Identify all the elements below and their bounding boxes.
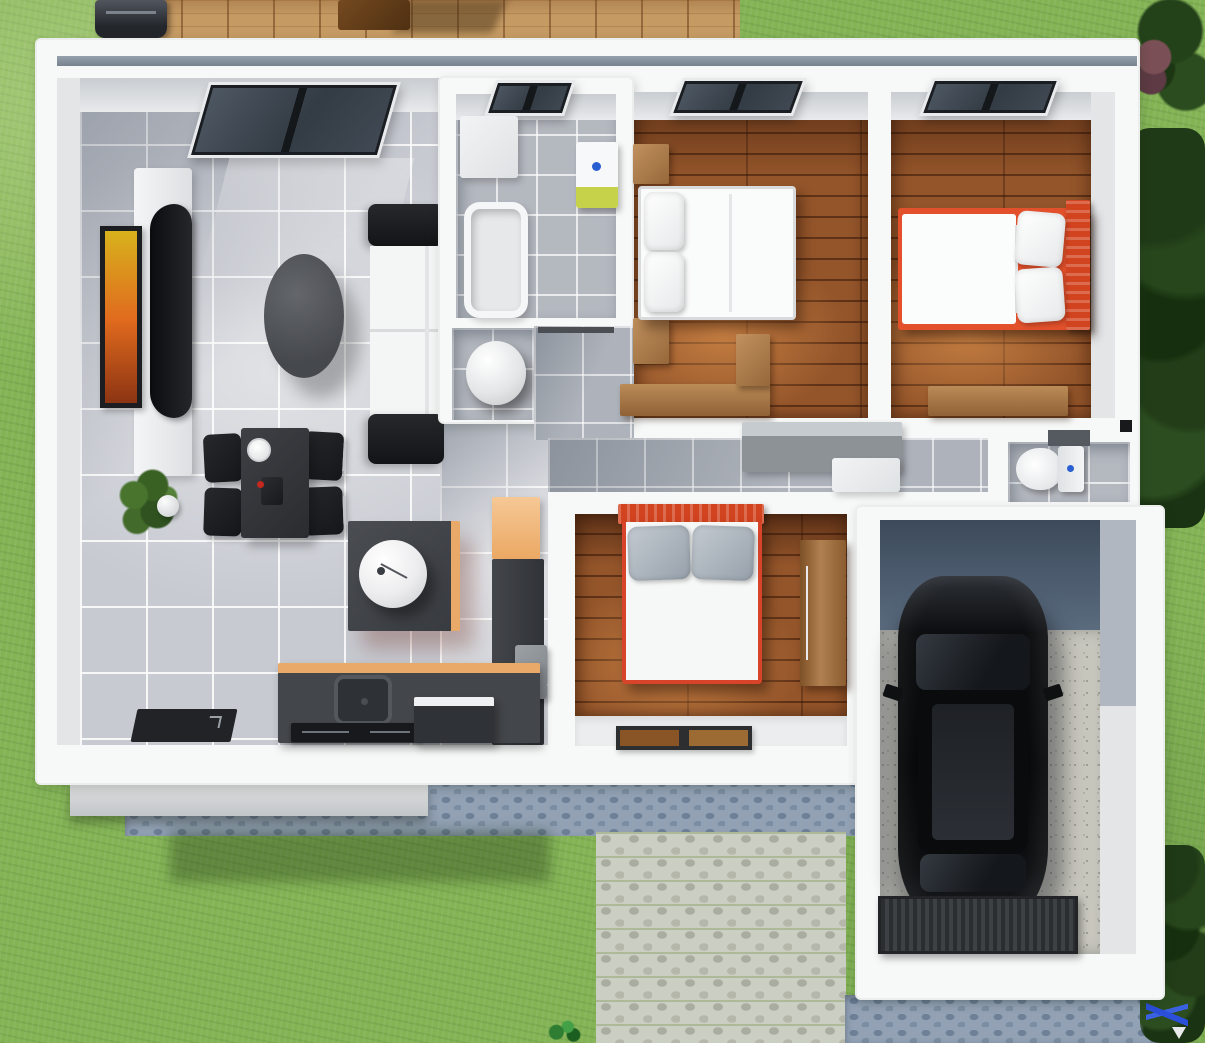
bedroom2-desk <box>928 386 1068 416</box>
cooktop <box>291 723 423 742</box>
house-shadow-on-grass <box>170 830 550 882</box>
kitchen-sink <box>334 675 392 725</box>
hall-door <box>538 327 614 333</box>
table-centerpiece <box>261 477 283 505</box>
sofa-seat <box>370 246 442 416</box>
hall-floor <box>534 326 634 440</box>
porch-step <box>70 782 428 816</box>
tall-cabinet-orange <box>492 497 540 559</box>
bbq-grill <box>95 0 167 38</box>
garage-ribbed-mat <box>878 896 1078 954</box>
bedroom3-doormat <box>616 726 752 750</box>
coffee-table <box>264 254 344 378</box>
corridor-chest <box>832 458 900 492</box>
bathroom-sink <box>576 142 618 208</box>
bed2-pillow <box>1014 210 1067 268</box>
bed2-headboard <box>1066 200 1090 330</box>
living-window <box>187 82 401 158</box>
island-basin <box>359 540 427 608</box>
left-wall-face <box>57 78 80 745</box>
entry-doormat <box>130 709 237 742</box>
car-sunroof <box>930 702 1016 842</box>
bed1-pillow <box>644 192 684 250</box>
sofa-armrest-bottom <box>368 414 444 464</box>
cobble-below-garage <box>845 995 1165 1043</box>
nightstand <box>633 144 669 184</box>
sprout-plant-bottom <box>545 1016 583 1043</box>
dishwasher <box>414 697 494 743</box>
dining-chair <box>203 487 243 536</box>
bedroom1-desk <box>620 384 770 416</box>
bathtub <box>464 202 528 318</box>
bedroom2-right-wall-face <box>1091 92 1115 418</box>
bathroom-cabinet <box>460 116 518 178</box>
bedroom1-desk-return <box>736 334 770 386</box>
garage-right-wall-face-bottom <box>1100 706 1136 954</box>
nightstand <box>633 318 669 364</box>
bed3-pillow <box>627 525 691 581</box>
driveway-light-cobbles <box>596 832 846 1043</box>
sofa-armrest-top <box>368 204 444 246</box>
car-windshield <box>916 634 1030 690</box>
potted-plant <box>112 464 190 546</box>
toilet-bowl <box>1016 448 1062 490</box>
bed3-pillow <box>691 525 755 581</box>
water-heater <box>466 341 526 405</box>
garage-right-wall-face-top <box>1100 520 1136 706</box>
bedroom2-window <box>919 78 1061 116</box>
bed3-headboard <box>618 504 764 524</box>
roof-gutter <box>57 56 1137 66</box>
bedroom3-wardrobe <box>800 540 846 686</box>
bedroom1-window <box>669 78 807 116</box>
plate <box>247 438 271 462</box>
bed1-pillow <box>644 252 684 312</box>
bed2-mattress <box>902 214 1016 324</box>
dining-chair <box>203 433 243 483</box>
trees-right <box>1130 128 1205 528</box>
bush-red <box>1136 36 1172 96</box>
toilet-shelf <box>1048 430 1090 446</box>
floor-plan-3d-render <box>0 0 1205 1043</box>
bathroom-window <box>484 80 576 116</box>
wall-picture <box>100 226 142 408</box>
tv-screen <box>150 204 192 418</box>
light-switch <box>1120 420 1132 432</box>
deck-table <box>338 0 410 30</box>
bed2-pillow <box>1014 266 1066 323</box>
car-rear-window <box>920 854 1026 892</box>
toilet-tank <box>1058 446 1084 492</box>
